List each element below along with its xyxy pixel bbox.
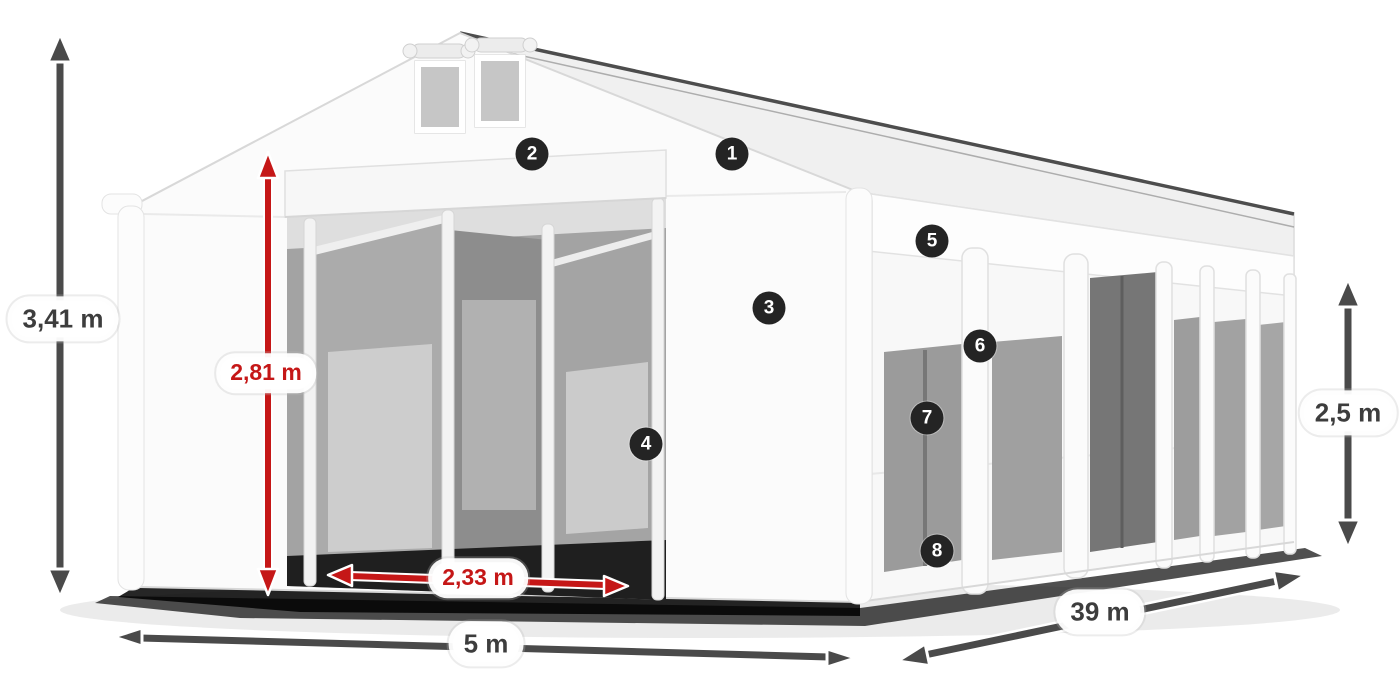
side-window-5 xyxy=(1258,322,1286,530)
dimension-label-total-height: 3,41 m xyxy=(12,300,115,337)
side-window-2 xyxy=(992,336,1062,560)
callout-badge-8: 8 xyxy=(921,535,954,568)
front-opening xyxy=(285,150,666,600)
callout-badge-5: 5 xyxy=(916,225,949,258)
gable-roller-left xyxy=(412,44,466,58)
side-window-4 xyxy=(1214,319,1246,536)
dimension-label-gable-width: 5 m xyxy=(453,625,520,662)
dimension-label-entrance-width: 2,33 m xyxy=(432,562,524,594)
tent-illustration xyxy=(0,0,1400,700)
gable-window-left xyxy=(418,64,462,130)
tent-side-wall xyxy=(850,192,1296,602)
dimension-label-entrance-height: 2,81 m xyxy=(220,357,312,389)
gable-roller-right xyxy=(474,38,528,52)
sliding-door-opening xyxy=(1090,272,1158,552)
callout-badge-4: 4 xyxy=(630,428,663,461)
product-diagram: 3,41 m 2,81 m 2,33 m 5 m 39 m 2,5 m 1 2 … xyxy=(0,0,1400,700)
callout-badge-1: 1 xyxy=(716,138,749,171)
gable-window-right xyxy=(478,58,522,124)
dimension-label-side-height: 2,5 m xyxy=(1304,394,1393,431)
dimension-label-length: 39 m xyxy=(1059,593,1140,630)
callout-badge-7: 7 xyxy=(911,402,944,435)
callout-badge-3: 3 xyxy=(753,292,786,325)
callout-badge-6: 6 xyxy=(964,330,997,363)
front-right-corner-pillar xyxy=(846,188,872,604)
door-mesh-panel-left xyxy=(328,344,432,552)
callout-badge-2: 2 xyxy=(516,138,549,171)
side-window-3 xyxy=(1174,317,1200,540)
front-left-corner-pillar xyxy=(118,206,144,590)
